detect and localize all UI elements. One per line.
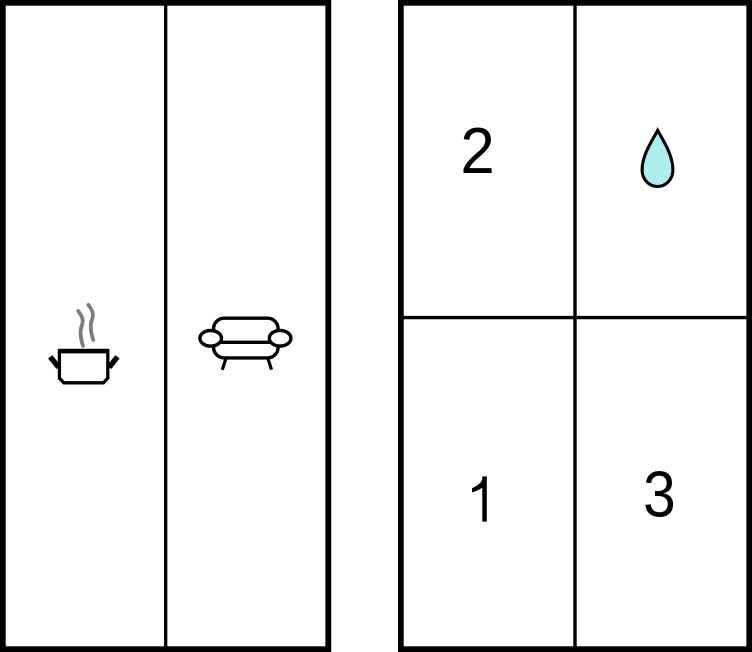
svg-text:2: 2 <box>460 115 494 187</box>
svg-text:3: 3 <box>643 459 676 532</box>
